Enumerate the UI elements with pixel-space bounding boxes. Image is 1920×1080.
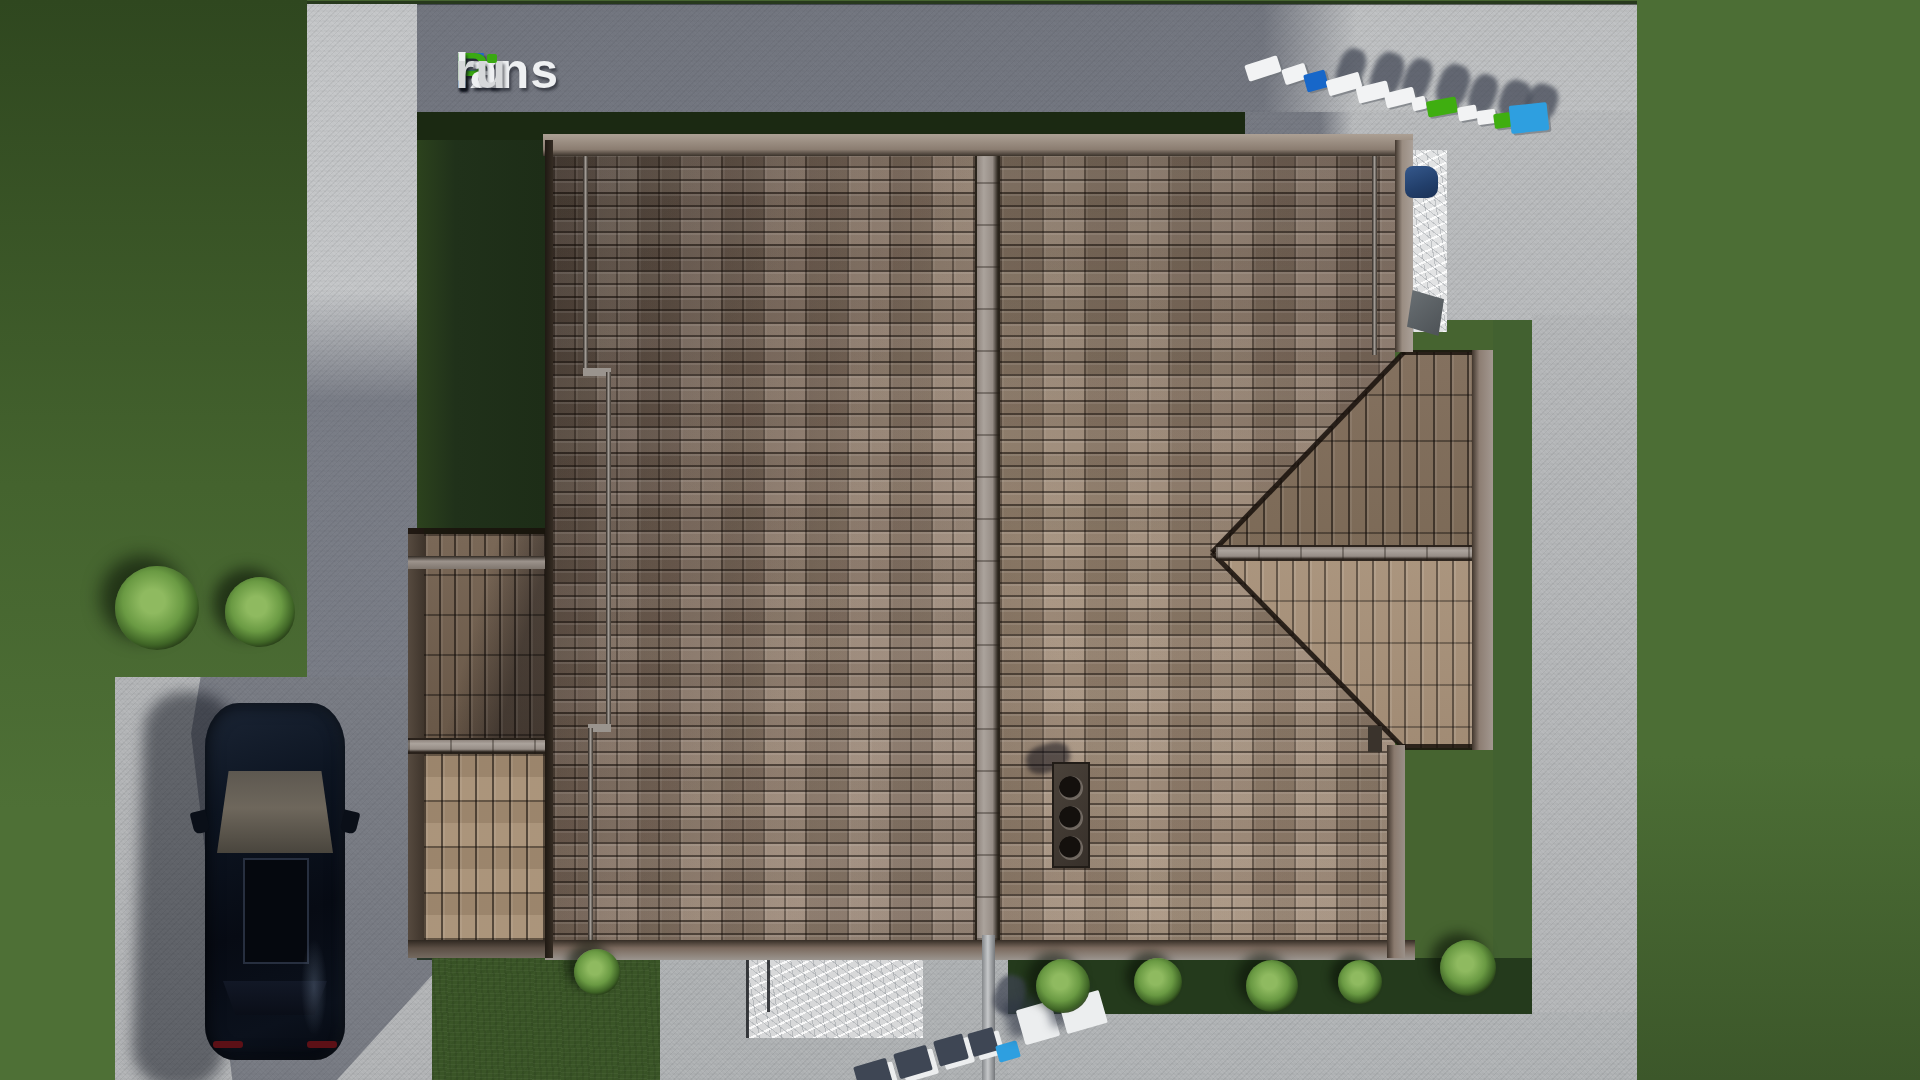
slab-joint-line [767,958,770,1012]
chimney-vent [1059,776,1083,800]
car-sunroof [243,858,309,964]
roof-flashing-line [606,372,611,728]
car-taillight-left [213,1041,243,1048]
roof-flashing-line [583,150,588,372]
wing-east-fascia [1472,350,1493,750]
chimney-vent [1059,806,1083,830]
bush [1134,958,1182,1006]
roof-ridge-central [975,140,1000,958]
concrete-path-right [1532,315,1637,1015]
roof-top-fascia [543,134,1413,156]
car-windshield [217,771,333,853]
garage-roof [408,528,553,958]
garage-lower-tiles [424,754,553,940]
car [205,703,345,1060]
chimney-vent [1059,836,1083,860]
garage-bottom-fascia [408,940,553,958]
wing-corner-post [1368,726,1382,752]
aerial-render-scene: FixPlans.ru [0,0,1920,1080]
roof-west-slope [553,140,975,958]
grass-bottom-left [432,958,660,1080]
stone-slab-patch [748,958,923,1038]
bush [1338,960,1382,1004]
car-taillight-right [307,1041,337,1048]
bush [1036,959,1090,1013]
bush [1440,940,1496,996]
roof-east-fascia-bottom [1387,745,1405,958]
garage-top-fascia [408,556,553,569]
lawn-right [1637,0,1920,1080]
shadow-on-left-strip [307,290,417,677]
downspout-pipe [982,935,995,1080]
logo-part: ru [455,46,507,96]
bush [115,566,199,650]
watermark-block [1509,102,1550,134]
car-highlight [301,939,327,1035]
roof-wing [1212,348,1493,752]
garage-ridge [408,738,553,754]
lawn-right-notch [1493,315,1532,1015]
awning-blue [1405,166,1438,198]
slab-joint-line [746,958,749,1038]
roof-west-eave-line [545,140,553,958]
bush [225,577,295,647]
bush [574,949,620,995]
bush [1246,960,1298,1012]
chimney [1052,762,1090,868]
wing-ridge [1216,545,1493,561]
roof-flashing-line [588,728,593,940]
logo-i-dot [487,54,497,63]
roof-flashing-line [1372,150,1377,355]
roof-bottom-fascia [545,940,1415,960]
